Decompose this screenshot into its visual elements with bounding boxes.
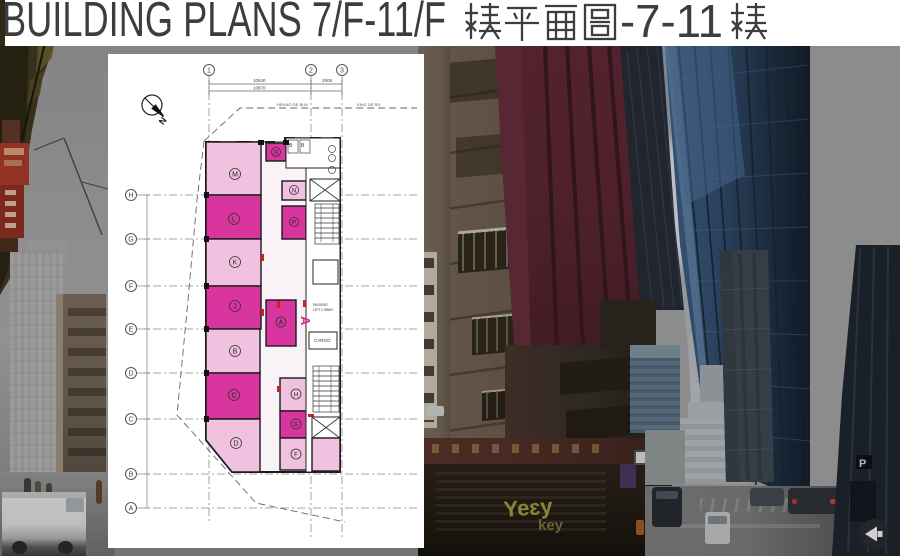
svg-text:L: L [232,217,236,224]
svg-text:H: H [294,393,298,399]
svg-text:1: 1 [207,68,211,75]
svg-text:10870: 10870 [253,86,266,91]
svg-text:D: D [233,441,238,448]
svg-text:KING DE RD: KING DE RD [357,102,380,107]
svg-text:-7-11: -7-11 [620,1,723,43]
svg-text:F: F [129,284,133,291]
svg-text:E: E [129,327,134,334]
svg-text:N: N [292,189,296,195]
svg-text:PASSNG: PASSNG [313,303,328,307]
svg-text:P: P [292,221,296,227]
svg-text:N: N [157,115,169,126]
svg-text:A: A [279,320,284,327]
svg-text:2905: 2905 [322,78,333,83]
svg-text:S: S [274,151,278,157]
svg-text:B: B [233,349,238,356]
svg-text:CARGO: CARGO [314,338,331,343]
svg-text:G: G [294,423,299,429]
svg-text:B: B [129,472,134,479]
svg-text:K: K [233,260,238,267]
svg-text:2: 2 [309,68,313,75]
svg-text:C: C [231,393,236,400]
svg-text:F: F [294,453,298,459]
svg-text:J: J [233,304,237,311]
svg-text:10940: 10940 [253,78,266,83]
svg-text:LIFT LOBBY: LIFT LOBBY [313,308,334,312]
svg-text:H: H [128,193,133,200]
svg-text:3: 3 [340,68,344,75]
svg-text:C: C [128,417,133,424]
svg-text:D: D [128,371,133,378]
svg-text:M: M [232,172,238,179]
svg-text:HEUNG GE BLW: HEUNG GE BLW [277,102,308,107]
svg-text:G: G [128,237,133,244]
svg-text:A: A [129,506,134,513]
svg-text:A: A [298,316,313,326]
